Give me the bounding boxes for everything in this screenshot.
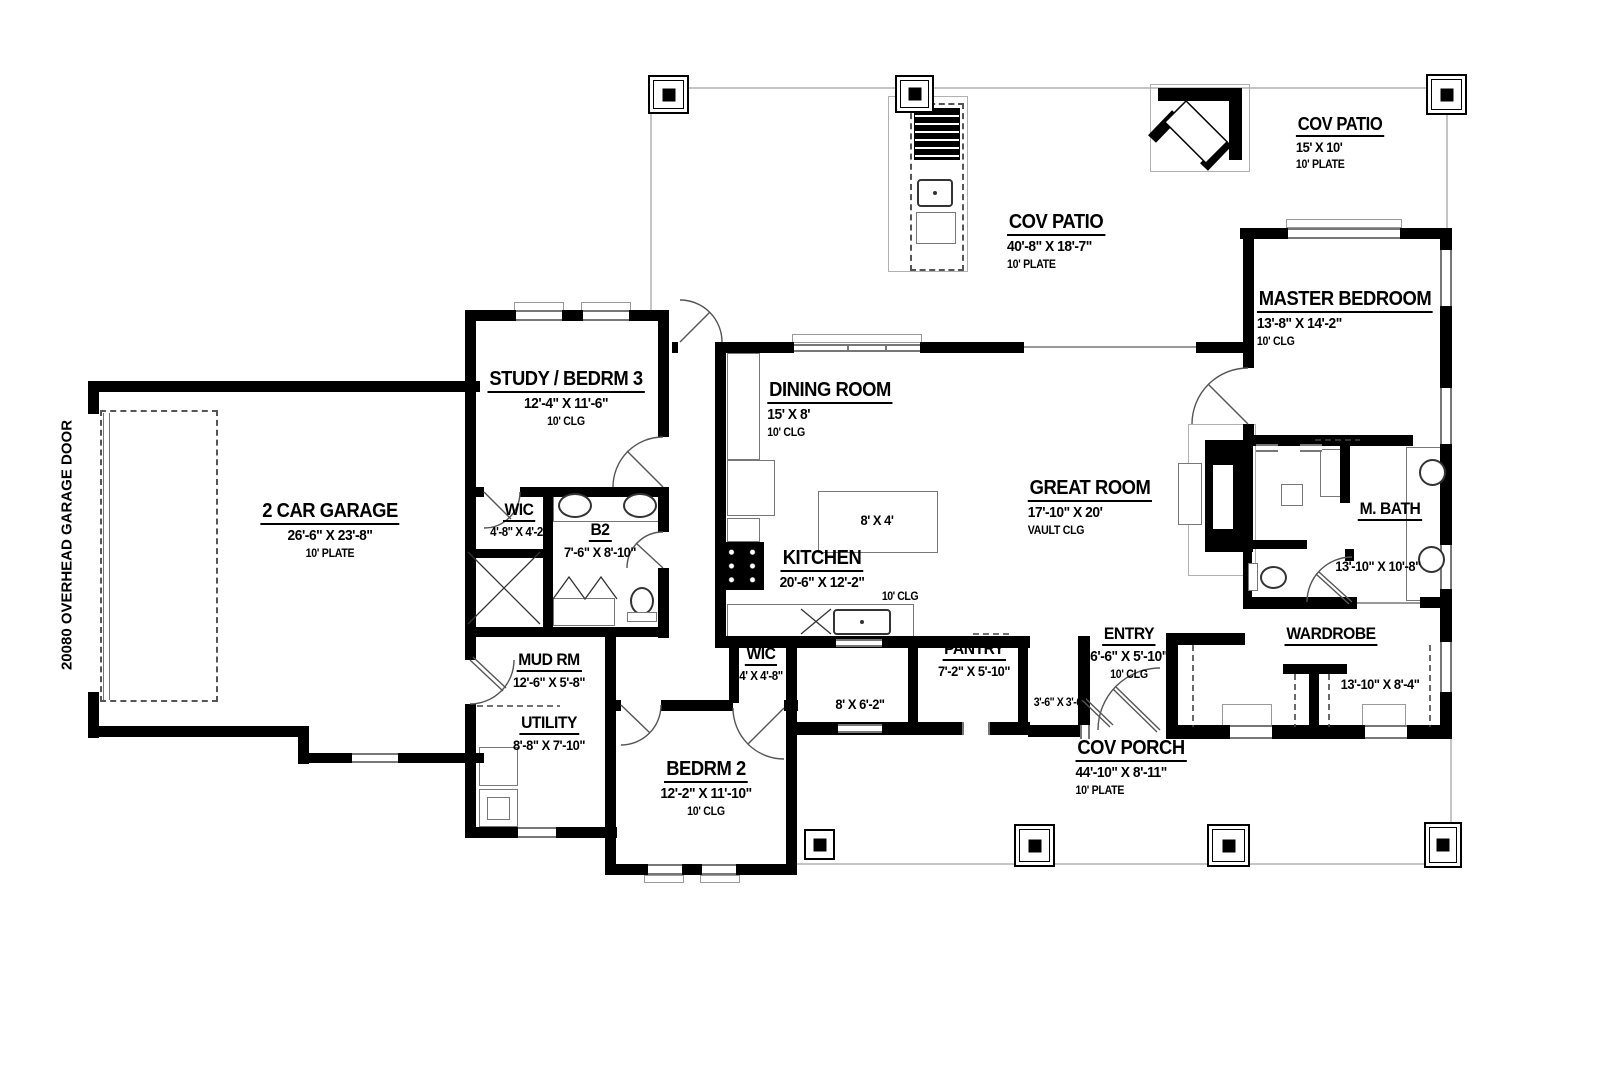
door-leaf-mbath-2 — [1316, 574, 1349, 604]
garage-door-size-label: 20080 OVERHEAD GARAGE DOOR — [59, 420, 76, 670]
room-label-b2: B2 7'-6" X 8'-10" — [564, 520, 636, 561]
room-label-wic2: WIC 4' X 4'-8" — [739, 644, 782, 683]
room-name: STUDY / BEDRM 3 — [488, 368, 645, 393]
room-name: 2 CAR GARAGE — [260, 500, 399, 525]
wardrobe-dims: 13'-10" X 8'-4" — [1341, 676, 1420, 692]
room-note: 10' CLG — [488, 416, 645, 429]
room-note: 10' PLATE — [1007, 259, 1105, 272]
door-leaf-master — [1208, 384, 1248, 424]
door-leaf-mudroom-2 — [473, 657, 506, 688]
room-dims: 17'-10" X 20' — [1028, 505, 1152, 522]
room-dims: 12'-4" X 11'-6" — [488, 396, 645, 413]
bifold-door — [553, 577, 617, 599]
island-dims: 8' X 4' — [861, 512, 894, 528]
door-leaf-front — [1116, 687, 1160, 730]
room-name: DINING ROOM — [767, 379, 892, 404]
room-dims: 4'-8" X 4'-2" — [490, 525, 548, 539]
room-note: 10' CLG — [1090, 669, 1168, 682]
room-label-mudroom: MUD RM 12'-6" X 5'-8" — [513, 650, 585, 691]
door-leaf-patio — [680, 312, 710, 342]
room-note: 10' PLATE — [1296, 159, 1384, 172]
room-label-study: STUDY / BEDRM 3 12'-4" X 11'-6" 10' CLG — [488, 368, 645, 429]
kitchen-clg-note: 10' CLG — [882, 591, 918, 603]
room-name: KITCHEN — [781, 547, 863, 572]
room-label-wic1: WIC 4'-8" X 4'-2" — [490, 500, 548, 539]
room-name: COV PATIO — [1296, 114, 1384, 137]
room-dims: 4' X 4'-8" — [739, 669, 782, 683]
room-name: WIC — [503, 500, 536, 522]
room-label-entry: ENTRY 6'-6" X 5'-10" 10' CLG — [1090, 624, 1168, 682]
room-label-covporch: COV PORCH 44'-10" X 8'-11" 10' PLATE — [1076, 737, 1187, 798]
room-name: WIC — [745, 644, 778, 666]
room-dims: 8'-8" X 7'-10" — [513, 738, 585, 754]
room-label-bedrm2: BEDRM 2 12'-2" X 11'-10" 10' CLG — [660, 758, 751, 819]
room-name: COV PATIO — [1007, 211, 1105, 236]
door-leaf-bedrm2 — [621, 705, 650, 733]
room-dims: 15' X 8' — [767, 407, 892, 424]
room-note: VAULT CLG — [1028, 525, 1152, 538]
room-dims: 12'-2" X 11'-10" — [660, 786, 751, 803]
room-dims: 12'-6" X 5'-8" — [513, 675, 585, 691]
room-dims: 7'-2" X 5'-10" — [938, 664, 1010, 680]
room-label-covpatio-main: COV PATIO 40'-8" X 18'-7" 10' PLATE — [1007, 211, 1105, 272]
room-name: M. BATH — [1358, 499, 1422, 521]
room-label-covpatio-right: COV PATIO 15' X 10' 10' PLATE — [1296, 114, 1384, 172]
room-name: UTILITY — [519, 713, 579, 735]
room-note: 10' CLG — [767, 427, 892, 440]
door-leaf-study — [627, 451, 663, 487]
room-note: 10' CLG — [1257, 336, 1433, 349]
room-dims: 15' X 10' — [1296, 140, 1384, 156]
room-dims: 26'-6" X 23'-8" — [260, 528, 399, 545]
door-leaf-mbath — [1319, 572, 1352, 602]
room-name: BEDRM 2 — [664, 758, 747, 783]
room-dims: 7'-6" X 8'-10" — [564, 545, 636, 561]
room-dims: 40'-8" X 18'-7" — [1007, 239, 1105, 256]
room-dims: 6'-6" X 5'-10" — [1090, 649, 1168, 666]
room-label-dining: DINING ROOM 15' X 8' 10' CLG — [767, 379, 892, 440]
door-leaf-b2 — [636, 543, 663, 568]
room-name: PANTRY — [942, 639, 1005, 661]
room-label-pantry: PANTRY 7'-2" X 5'-10" — [938, 639, 1010, 680]
room-note: 10' PLATE — [260, 548, 399, 561]
room-dims: 44'-10" X 8'-11" — [1076, 765, 1187, 782]
room-label-master: MASTER BEDROOM 13'-8" X 14'-2" 10' CLG — [1257, 288, 1433, 349]
hall-dims: 8' X 6'-2" — [835, 696, 884, 712]
room-name: MUD RM — [516, 650, 581, 672]
room-label-greatroom: GREAT ROOM 17'-10" X 20' VAULT CLG — [1028, 477, 1152, 538]
room-dims: 20'-6" X 12'-2" — [780, 575, 865, 592]
room-name: COV PORCH — [1076, 737, 1187, 762]
shower-x-pattern — [468, 552, 540, 624]
room-label-garage: 2 CAR GARAGE 26'-6" X 23'-8" 10' PLATE — [260, 500, 399, 561]
room-label-kitchen: KITCHEN 20'-6" X 12'-2" — [780, 547, 865, 592]
dishwasher-x-pattern — [801, 609, 831, 634]
room-name: ENTRY — [1102, 624, 1156, 646]
room-label-wardrobe: WARDROBE — [1285, 624, 1378, 646]
room-note: 10' PLATE — [1076, 785, 1187, 798]
room-name: GREAT ROOM — [1028, 477, 1152, 502]
room-dims: 13'-8" X 14'-2" — [1257, 316, 1433, 333]
room-name: B2 — [589, 520, 612, 542]
floor-plan-canvas: 2 CAR GARAGE 26'-6" X 23'-8" 10' PLATE S… — [0, 0, 1600, 1067]
mbath-dims: 13'-10" X 10'-8" — [1335, 558, 1420, 574]
room-label-utility: UTILITY 8'-8" X 7'-10" — [513, 713, 585, 754]
door-leaf-mudroom — [470, 660, 503, 691]
room-label-mbath: M. BATH — [1358, 499, 1422, 521]
door-leaf-wic2 — [748, 708, 784, 744]
room-note: 10' CLG — [660, 806, 751, 819]
room-name: MASTER BEDROOM — [1257, 288, 1433, 313]
room-name: WARDROBE — [1285, 624, 1378, 646]
entry-closet-dims: 3'-6" X 3'-6" — [1034, 697, 1087, 709]
door-leaf-front-2 — [1113, 689, 1157, 732]
